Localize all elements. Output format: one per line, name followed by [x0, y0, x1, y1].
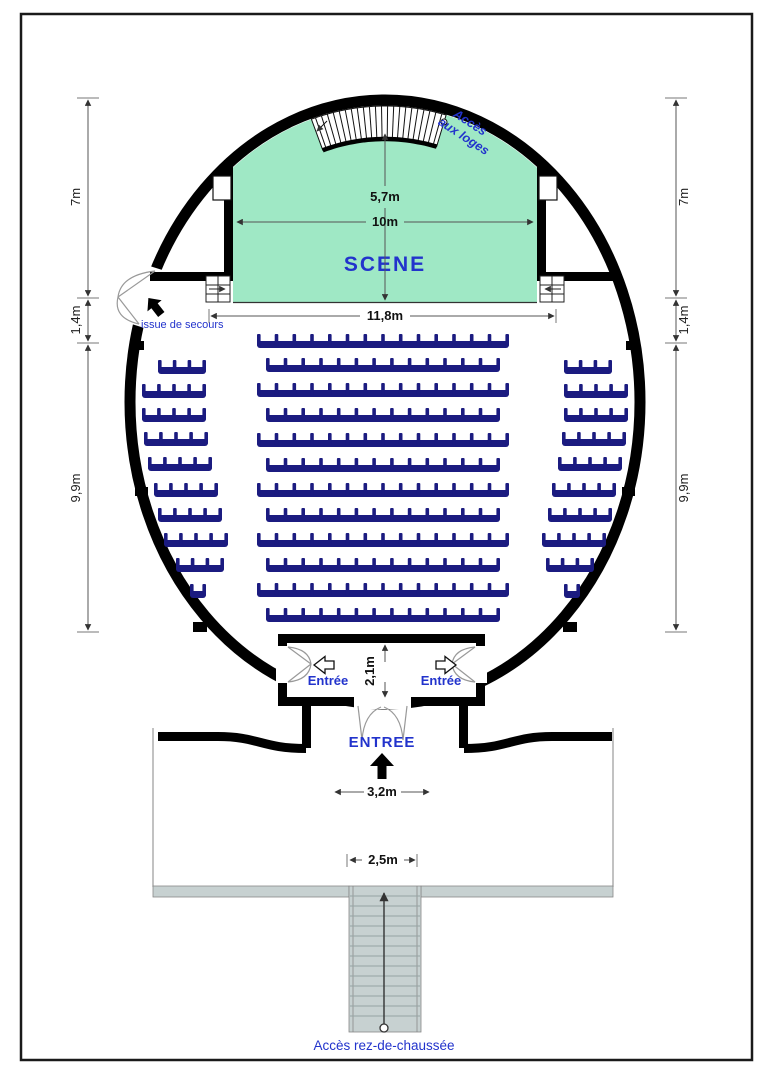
issue-secours-label: issue de secours	[141, 319, 224, 331]
dim-left-1-4m: 1,4m	[68, 306, 83, 335]
entree-main-label: ENTREE	[349, 734, 416, 751]
seat-row	[257, 334, 509, 348]
dim-right-7m: 7m	[676, 188, 691, 206]
vestibule-interior	[281, 642, 482, 700]
dim-stage-width: 10m	[372, 214, 398, 229]
dim-entrance-width: 3,2m	[367, 784, 397, 799]
floor-plan-svg: Entrée Entrée ENTREE Accès rez-de-chauss…	[0, 0, 770, 1078]
stage-steps-right	[540, 276, 564, 302]
dim-stair-width: 2,5m	[368, 852, 398, 867]
floor-plan-page: Entrée Entrée ENTREE Accès rez-de-chauss…	[0, 0, 770, 1078]
dim-right-9-9m: 9,9m	[676, 474, 691, 503]
seat-row	[257, 433, 509, 447]
seat-row	[257, 583, 509, 597]
dim-right-1-4m: 1,4m	[676, 306, 691, 335]
dim-vestibule-depth: 2,1m	[362, 656, 377, 686]
seat-row	[257, 483, 509, 497]
dim-stage-depth: 5,7m	[370, 189, 400, 204]
stair-start-marker	[380, 1024, 388, 1032]
dim-stage-opening: 11,8m	[367, 308, 403, 323]
entree-right-label: Entrée	[421, 673, 461, 688]
acces-rdc-label: Accès rez-de-chaussée	[313, 1038, 454, 1053]
entree-left-label: Entrée	[308, 673, 348, 688]
exterior-staircase	[349, 886, 421, 1032]
dim-left-9-9m: 9,9m	[68, 474, 83, 503]
dim-left-7m: 7m	[68, 188, 83, 206]
seat-row	[257, 533, 509, 547]
seat-row	[257, 383, 509, 397]
stage-steps-left	[206, 276, 230, 302]
